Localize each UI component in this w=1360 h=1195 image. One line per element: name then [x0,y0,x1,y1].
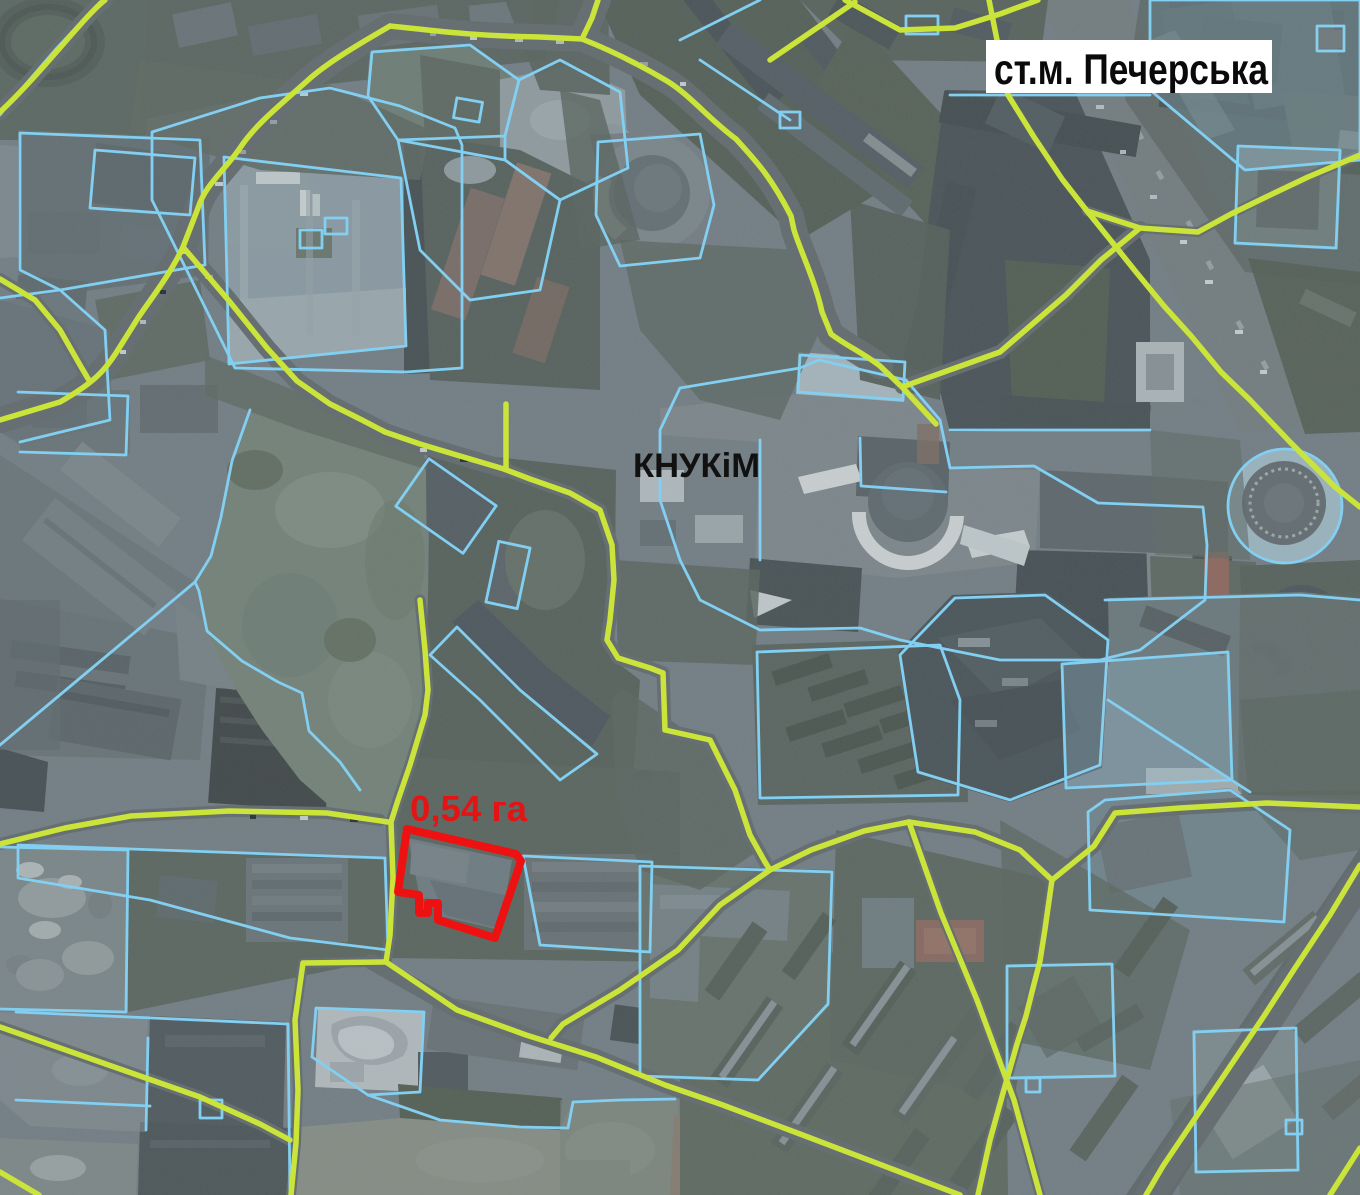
svg-text:0,54 га: 0,54 га [410,788,528,829]
svg-text:ст.м. Печерська: ст.м. Печерська [994,46,1269,94]
svg-text:КНУКіМ: КНУКіМ [633,447,760,485]
